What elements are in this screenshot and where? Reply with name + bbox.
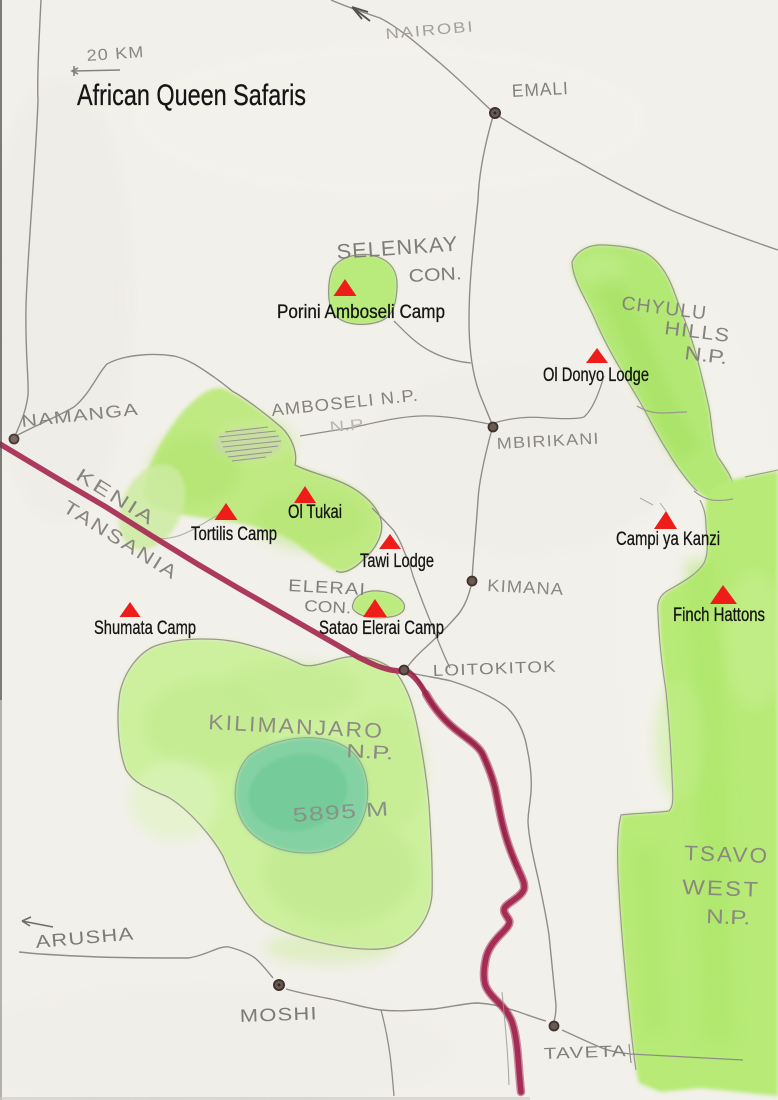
svg-text:MOSHI: MOSHI	[239, 1003, 318, 1026]
svg-text:N.P.: N.P.	[346, 741, 394, 764]
svg-text:TSAVO: TSAVO	[684, 842, 770, 868]
svg-text:EMALI: EMALI	[511, 78, 569, 101]
svg-text:TAVETA: TAVETA	[544, 1043, 628, 1063]
svg-text:Finch Hattons: Finch Hattons	[673, 605, 765, 626]
svg-text:N.P: N.P	[329, 416, 364, 436]
svg-text:Satao Elerai Camp: Satao Elerai Camp	[319, 618, 444, 639]
svg-text:N.P.: N.P.	[706, 906, 751, 930]
svg-text:Tortilis Camp: Tortilis Camp	[191, 524, 277, 545]
svg-text:Ol Donyo Lodge: Ol Donyo Lodge	[543, 365, 649, 386]
svg-text:Shumata Camp: Shumata Camp	[94, 618, 196, 639]
svg-text:Campi ya Kanzi: Campi ya Kanzi	[616, 529, 720, 550]
svg-text:WEST: WEST	[682, 876, 761, 902]
svg-text:KIMANA: KIMANA	[487, 576, 565, 599]
svg-text:Tawi Lodge: Tawi Lodge	[360, 551, 434, 572]
svg-text:CON.: CON.	[408, 263, 462, 286]
svg-text:Ol Tukai: Ol Tukai	[288, 502, 342, 523]
svg-text:Porini Amboseli Camp: Porini Amboseli Camp	[277, 302, 445, 323]
svg-text:African Queen Safaris: African Queen Safaris	[77, 79, 306, 112]
svg-text:CON.: CON.	[304, 598, 352, 617]
